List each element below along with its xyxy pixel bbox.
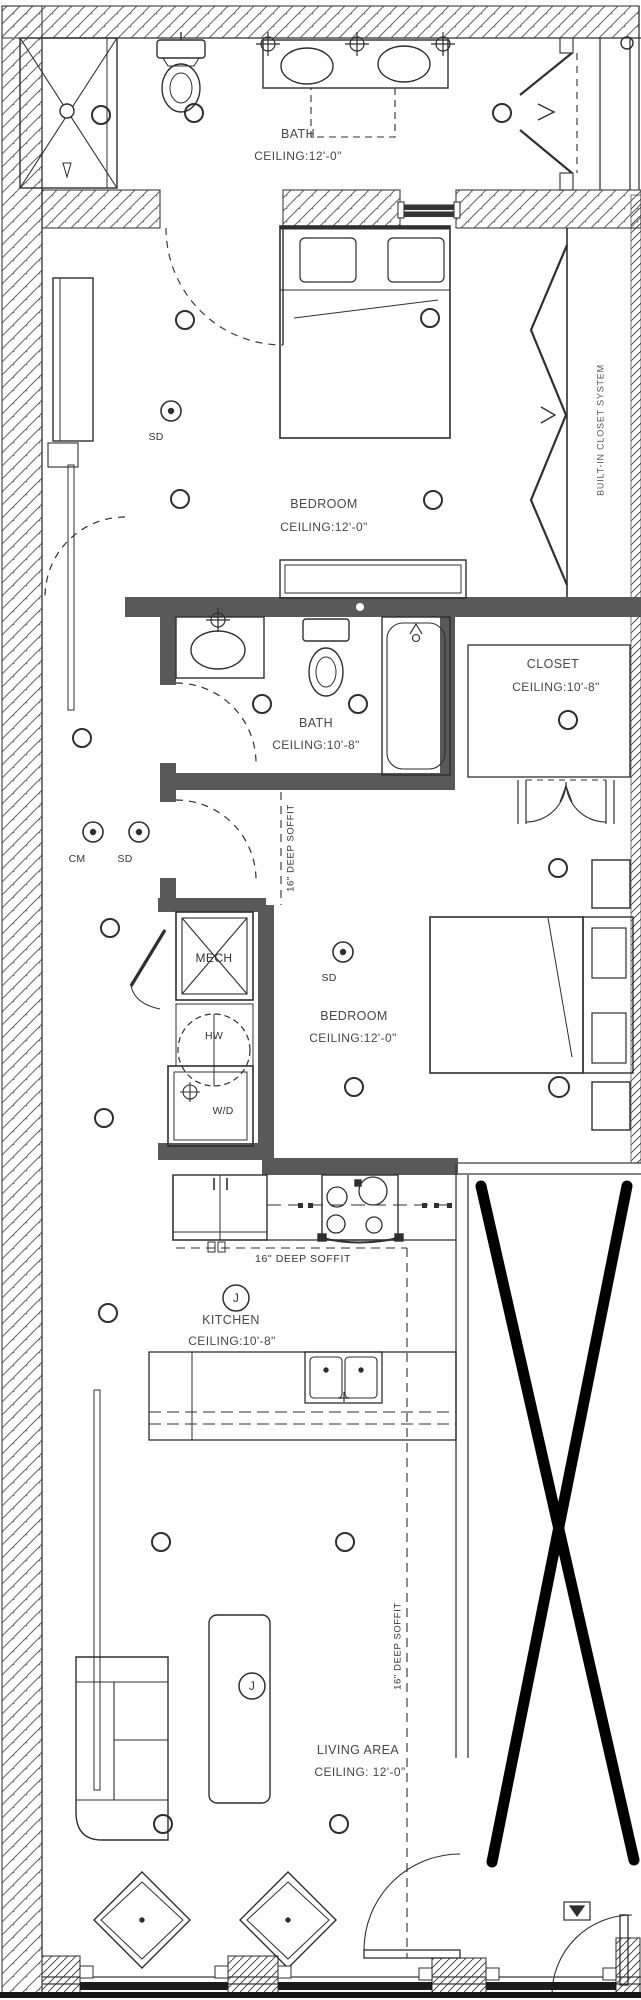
floor-plan: BATH CEILING:12'-0" BEDROOM CEILING:12'-… — [0, 0, 641, 2000]
smoke-detector-icon — [333, 942, 353, 962]
room-label-bedroom-mid: BEDROOM — [320, 1010, 387, 1023]
recessed-lights — [171, 309, 442, 509]
room-label-kitchen: KITCHEN — [202, 1314, 260, 1327]
ceiling-label-bath-mid: CEILING:10'-8" — [272, 739, 360, 751]
bath-door-arc — [176, 683, 256, 763]
junction-label: J — [249, 1680, 255, 1692]
media-unit-icon — [48, 278, 93, 467]
smoke-detector-icon — [161, 401, 181, 421]
utility-column — [131, 912, 253, 1146]
bedroom-upper-furniture — [45, 226, 567, 710]
ceiling-label-bedroom-mid: CEILING:12'-0" — [309, 1032, 397, 1044]
nightstand-icon — [592, 1082, 630, 1130]
bath-mid-fixtures — [176, 608, 450, 905]
door-pivot-icon — [621, 37, 633, 49]
cm-sd-detectors — [83, 822, 149, 842]
junction-label: J — [233, 1292, 239, 1304]
room-label-bedroom-upper: BEDROOM — [290, 498, 357, 511]
range-icon — [318, 1175, 403, 1243]
soffit-label-vertical: 16" DEEP SOFFIT — [286, 804, 296, 892]
bedroom-exit-door-arc — [45, 517, 125, 597]
accent-chair-icon — [94, 1872, 190, 1968]
ceiling-label-living: CEILING: 12'-0" — [314, 1766, 405, 1778]
window-wall — [0, 1966, 641, 1998]
bed-icon — [280, 226, 450, 438]
room-label-bath-upper: BATH — [281, 128, 315, 141]
excluded-area-x-mark — [481, 1186, 634, 1862]
floor-plan-drawing — [0, 0, 641, 2000]
panel-symbol-icon — [564, 1902, 590, 1920]
wall-ledge — [68, 465, 74, 710]
water-heater-icon — [176, 1004, 253, 1086]
transom-window-icon — [398, 202, 460, 218]
bed-icon — [430, 917, 633, 1073]
cm-label: CM — [69, 854, 86, 865]
sink-vanity-icon — [176, 608, 264, 678]
accent-chair-icon — [240, 1872, 336, 1968]
sd-label: SD — [149, 432, 164, 443]
dresser-icon — [280, 560, 466, 598]
recessed-light — [99, 1304, 117, 1322]
fridge-icon — [173, 1175, 267, 1252]
perimeter-walls — [2, 6, 641, 1996]
utility-door-icon — [131, 930, 165, 1009]
soffit-label-horizontal: 16" DEEP SOFFIT — [255, 1254, 351, 1265]
linen-closet-doors-icon — [520, 38, 577, 190]
sofa-icon — [76, 1657, 168, 1840]
recessed-lights — [253, 695, 367, 713]
french-doors-icon — [518, 780, 614, 824]
ceiling-label-bath-upper: CEILING:12'-0" — [254, 150, 342, 162]
built-in-closet-label: BUILT-IN CLOSET SYSTEM — [597, 364, 606, 496]
washer-dryer-icon — [168, 1066, 253, 1146]
wall-ledge — [94, 1390, 100, 1790]
living-elements — [76, 1390, 354, 1968]
bedroom2-entry-door-arc — [176, 800, 256, 880]
toilet-icon — [303, 619, 349, 696]
console-table-icon — [209, 1615, 270, 1803]
ceiling-label-kitchen: CEILING:10'-8" — [188, 1335, 276, 1347]
mech-label: MECH — [196, 952, 233, 964]
built-in-closet-doors-icon — [531, 228, 567, 597]
wall-lines — [42, 6, 641, 1984]
bath-upper-fixtures — [20, 32, 633, 190]
recessed-lights — [92, 104, 511, 124]
room-label-living: LIVING AREA — [317, 1744, 399, 1757]
island-icon — [149, 1352, 456, 1440]
sd-label: SD — [322, 973, 337, 984]
sd-label: SD — [118, 854, 133, 865]
ceiling-label-closet: CEILING:10'-8" — [512, 681, 600, 693]
hw-label: HW — [205, 1031, 223, 1042]
wd-label: W/D — [212, 1106, 233, 1117]
toilet-icon — [157, 32, 205, 112]
soffit-boundary-dashed — [176, 1248, 407, 1958]
room-label-bath-mid: BATH — [299, 717, 333, 730]
double-vanity-icon — [256, 32, 455, 137]
nightstand-icon — [592, 860, 630, 908]
room-label-closet: CLOSET — [527, 658, 579, 671]
ceiling-label-bedroom-upper: CEILING:12'-0" — [280, 521, 368, 533]
soffit-label-vertical: 16" DEEP SOFFIT — [393, 1602, 403, 1690]
bathtub-icon — [382, 617, 450, 775]
